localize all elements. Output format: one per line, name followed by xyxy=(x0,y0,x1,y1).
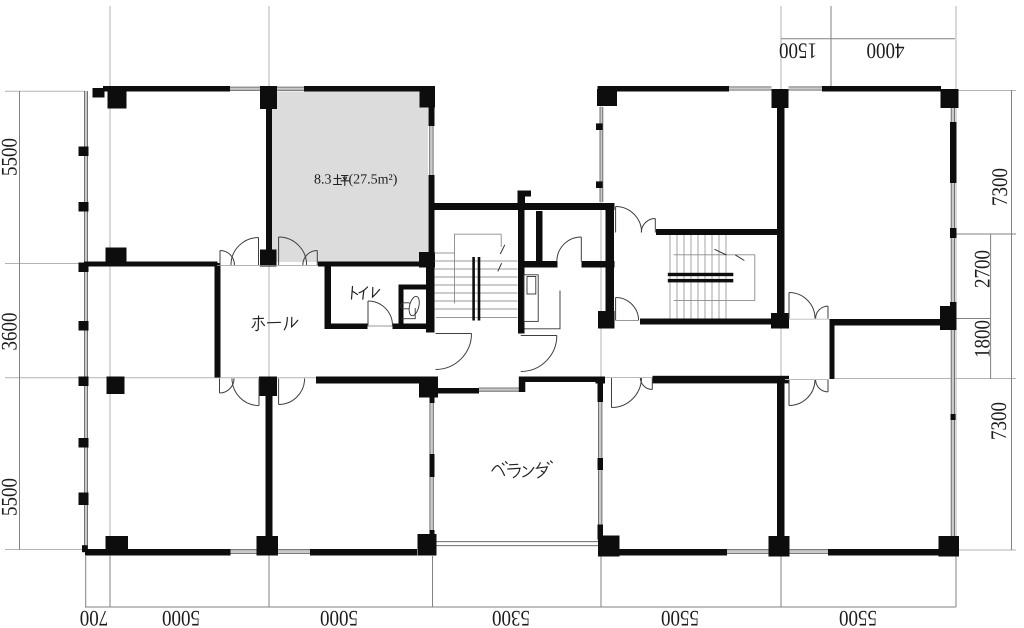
svg-text:5500: 5500 xyxy=(661,605,699,628)
svg-text:1800: 1800 xyxy=(971,320,996,358)
svg-text:3600: 3600 xyxy=(0,313,22,351)
svg-text:7300: 7300 xyxy=(988,168,1013,206)
svg-text:5300: 5300 xyxy=(492,605,530,628)
svg-text:5000: 5000 xyxy=(320,605,358,628)
svg-text:2700: 2700 xyxy=(971,250,996,288)
svg-text:700: 700 xyxy=(80,605,109,628)
svg-text:5500: 5500 xyxy=(839,605,877,628)
svg-text:7300: 7300 xyxy=(987,402,1012,440)
svg-text:5000: 5000 xyxy=(162,605,200,628)
svg-text:(27.5m²): (27.5m²) xyxy=(349,173,398,188)
svg-text:5500: 5500 xyxy=(0,478,22,516)
svg-text:1500: 1500 xyxy=(779,38,817,63)
svg-text:5500: 5500 xyxy=(0,138,22,176)
svg-text:8.3: 8.3 xyxy=(314,173,332,188)
svg-text:4000: 4000 xyxy=(867,38,905,63)
